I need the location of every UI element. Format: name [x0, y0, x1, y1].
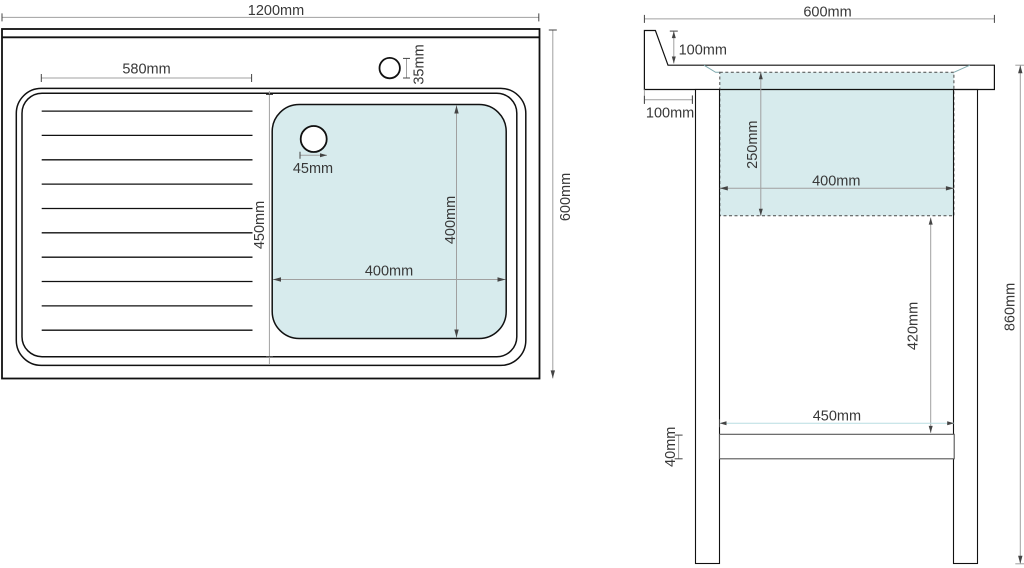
svg-text:600mm: 600mm	[558, 173, 574, 221]
svg-text:400mm: 400mm	[365, 264, 413, 280]
svg-text:450mm: 450mm	[813, 409, 861, 425]
svg-text:35mm: 35mm	[412, 44, 428, 84]
svg-text:250mm: 250mm	[745, 121, 761, 169]
svg-text:100mm: 100mm	[646, 106, 694, 122]
svg-text:400mm: 400mm	[443, 196, 459, 244]
svg-text:860mm: 860mm	[1003, 283, 1019, 331]
svg-text:580mm: 580mm	[122, 62, 170, 78]
svg-text:420mm: 420mm	[906, 302, 922, 350]
svg-text:1200mm: 1200mm	[248, 3, 304, 19]
svg-text:40mm: 40mm	[663, 427, 679, 467]
svg-text:600mm: 600mm	[803, 5, 851, 21]
svg-text:100mm: 100mm	[679, 43, 727, 59]
svg-text:45mm: 45mm	[293, 161, 333, 177]
svg-text:400mm: 400mm	[812, 173, 860, 189]
svg-text:450mm: 450mm	[252, 201, 268, 249]
